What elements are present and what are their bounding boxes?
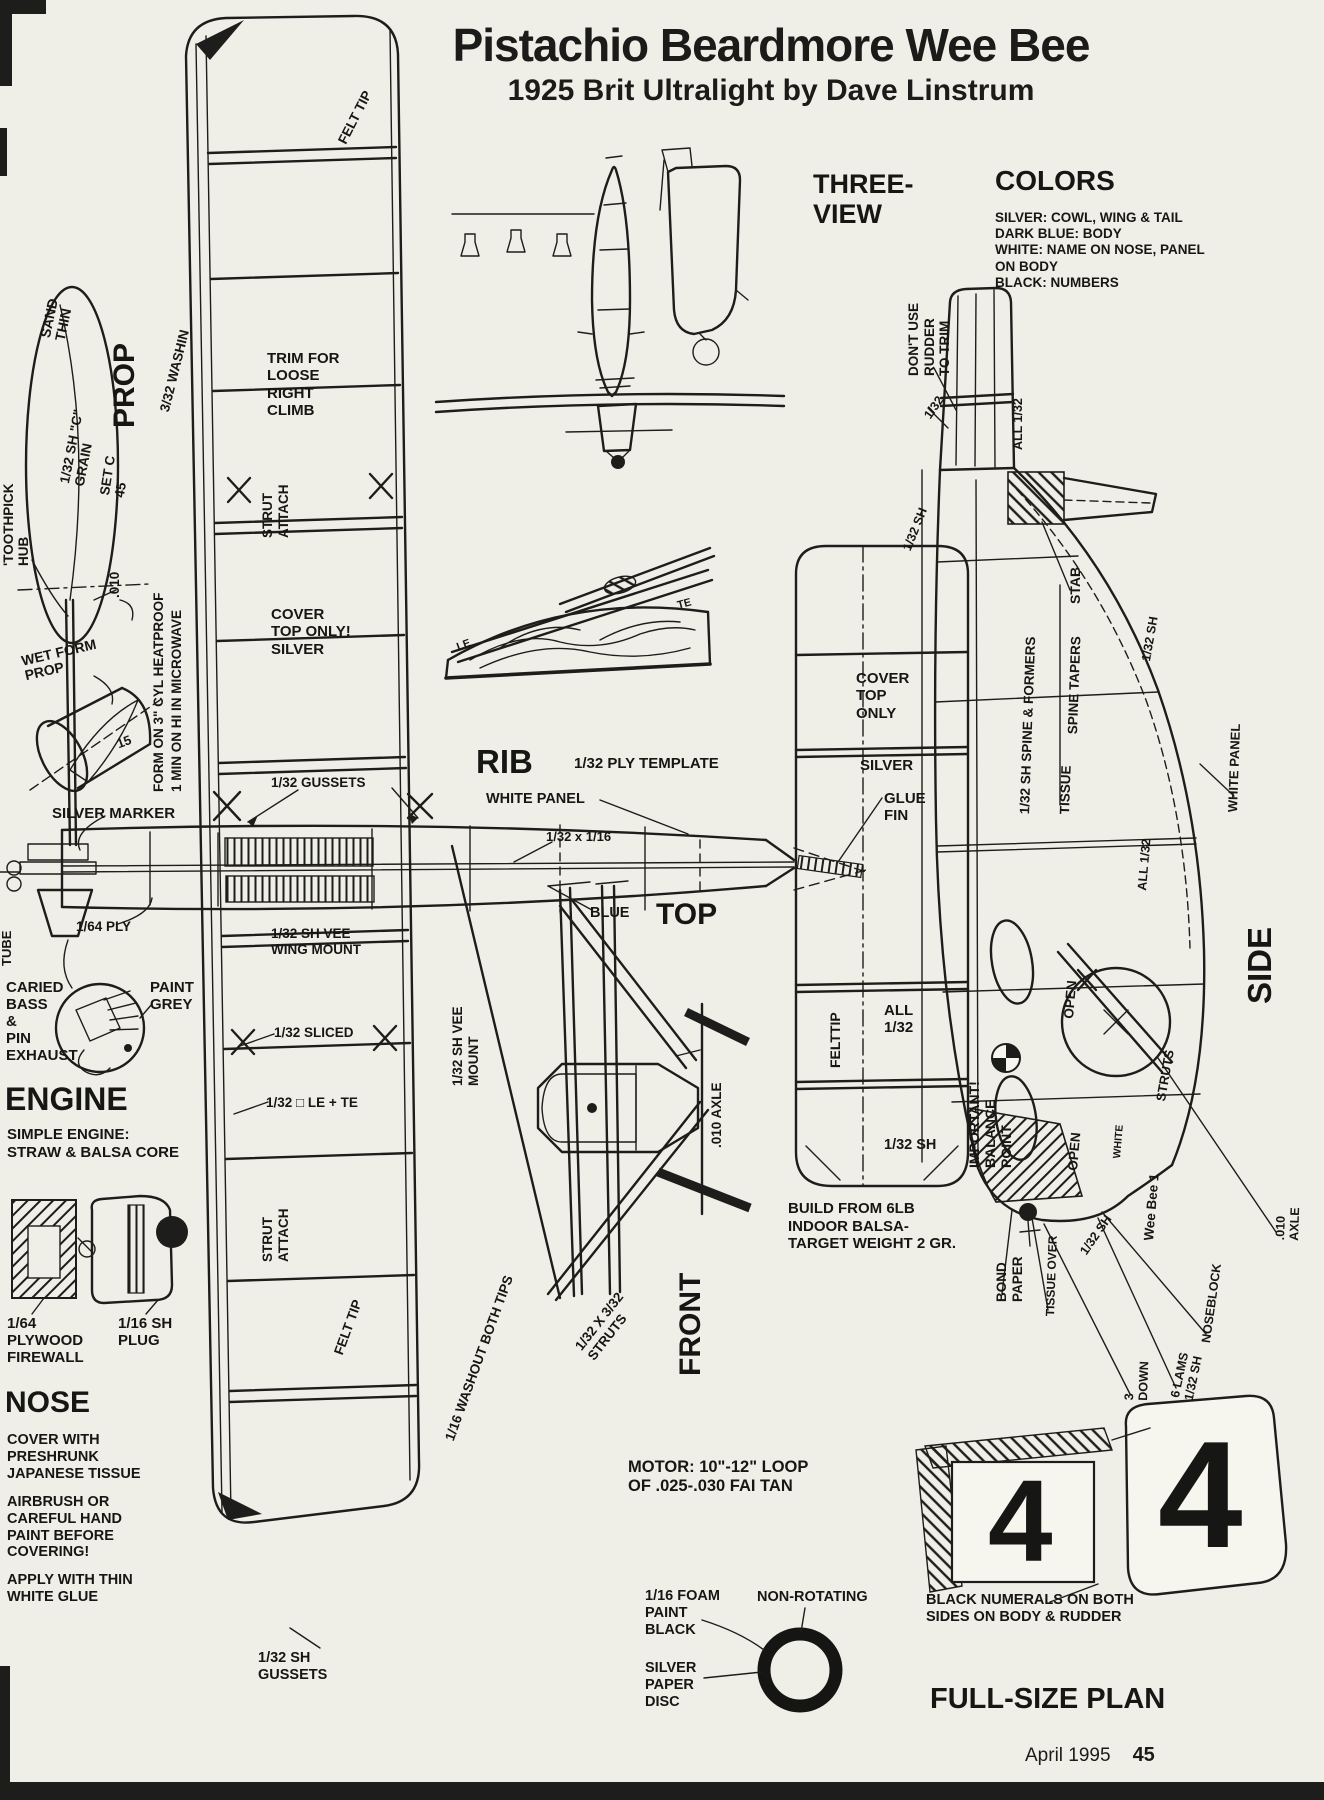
white-panel-top-note: WHITE PANEL [486, 792, 585, 808]
prop-title: PROP [108, 343, 141, 428]
nose-parts-drawing [12, 1196, 188, 1314]
cover-top-silver-note: COVER TOP ONLY! SILVER [271, 606, 351, 658]
three-view-title: THREE- VIEW [813, 170, 914, 229]
wing-plan-drawing [186, 16, 419, 1523]
plan-page: Pistachio Beardmore Wee Bee 1925 Brit Ul… [0, 0, 1324, 1800]
sliced-note: 1/32 SLICED [274, 1026, 354, 1041]
airbrush-note: AIRBRUSH OR CAREFUL HAND PAINT BEFORE CO… [7, 1494, 122, 1561]
fin-stab-plan-drawing [794, 546, 968, 1186]
down-3-note: 3 DOWN [1122, 1360, 1152, 1401]
balance-note: IMPORTANT! BALANCE POINT [966, 1081, 1014, 1168]
glue-fin-note: GLUE FIN [884, 790, 926, 825]
tissue-over-note: TISSUE OVER [1044, 1235, 1060, 1316]
colors-legend: SILVER: COWL, WING & TAIL DARK BLUE: BOD… [995, 210, 1205, 291]
body-numeral-4: 4 [1158, 1412, 1243, 1579]
plug-note: 1/16 SH PLUG [118, 1316, 172, 1350]
vee-mount-note: 1/32 SH VEE MOUNT [450, 1006, 481, 1086]
prop-wire-note: .010 [108, 572, 123, 598]
page-footer: April 199545 [1025, 1744, 1155, 1767]
all-132-fin-note: ALL 1/32 [884, 1002, 913, 1037]
firewall-note: 1/64 PLYWOOD FIREWALL [7, 1316, 84, 1367]
strip-note: 1/32 x 1/16 [546, 830, 611, 844]
vee-wing-mount-note: 1/32 SH VEE WING MOUNT [271, 926, 361, 957]
sh-132-fin-note: 1/32 SH [884, 1138, 936, 1154]
foam-note: 1/16 FOAM PAINT BLACK [645, 1588, 720, 1638]
gussets-132-note: 1/32 GUSSETS [271, 776, 366, 791]
side-title: SIDE [1242, 927, 1278, 1004]
ply-164-note: 1/64 PLY [76, 920, 131, 935]
rudder-numeral-4: 4 [988, 1458, 1053, 1586]
stab-note: STAB [1068, 567, 1083, 604]
full-size-plan-title: FULL-SIZE PLAN [930, 1684, 1165, 1716]
build-note: BUILD FROM 6LB INDOOR BALSA- TARGET WEIG… [788, 1200, 956, 1253]
axle-010-side-note: .010 AXLE [1274, 1190, 1303, 1241]
colors-title: COLORS [995, 166, 1115, 197]
rudder-trim-note: DON'T USE RUDDER TO TRIM [906, 303, 953, 376]
leader-lines [32, 368, 1276, 1648]
white-glue-note: APPLY WITH THIN WHITE GLUE [7, 1572, 133, 1606]
silver-marker-note: SILVER MARKER [52, 806, 175, 823]
page-subtitle: 1925 Brit Ultralight by Dave Linstrum [398, 74, 1144, 108]
engine-title: ENGINE [5, 1082, 128, 1117]
footer-page-number: 45 [1133, 1744, 1155, 1766]
non-rotating-note: NON-ROTATING [757, 1590, 868, 1606]
engine-sub: SIMPLE ENGINE: STRAW & BALSA CORE [7, 1126, 179, 1161]
ply-template-note: 1/32 PLY TEMPLATE [574, 756, 719, 773]
nose-cover-note: COVER WITH PRESHRUNK JAPANESE TISSUE [7, 1432, 141, 1482]
microwave-note: FORM ON 3" CYL HEATPROOF 1 MIN ON HI IN … [150, 593, 185, 792]
front-title: FRONT [674, 1273, 707, 1376]
rib-template-drawing [446, 548, 714, 678]
gussets-sh-note: 1/32 SH GUSSETS [258, 1650, 327, 1684]
paint-grey-note: PAINT GREY [150, 980, 194, 1014]
strut-attach-lower-note: STRUT ATTACH [260, 1209, 291, 1263]
page-title: Pistachio Beardmore Wee Bee [398, 18, 1144, 72]
axle-010-front-note: .010 AXLE [710, 1082, 725, 1148]
motor-note: MOTOR: 10"-12" LOOP OF .025-.030 FAI TAN [628, 1458, 808, 1497]
nose-title: NOSE [5, 1386, 90, 1419]
cylinder-drawing [27, 688, 160, 799]
silver-fin-note: SILVER [860, 758, 913, 775]
tube-note: TUBE [0, 931, 14, 966]
strut-attach-upper-note: STRUT ATTACH [260, 485, 291, 539]
felttip-fin-note: FELTTIP [828, 1012, 843, 1068]
numerals-caption: BLACK NUMERALS ON BOTH SIDES ON BODY & R… [926, 1592, 1134, 1626]
bond-paper-note: BOND PAPER [994, 1256, 1025, 1302]
tissue-note: TISSUE [1058, 765, 1075, 814]
three-view-drawing [436, 148, 784, 469]
rib-title: RIB [476, 744, 533, 780]
toothpick-hub-note: 'TOOTHPICK HUB [2, 484, 32, 566]
cover-top-only-note: COVER TOP ONLY [856, 670, 909, 722]
blue-note: BLUE [590, 906, 629, 922]
top-title: TOP [656, 898, 717, 931]
fin-all-132-note: ALL 1/32 [1012, 398, 1026, 450]
exhaust-note: CARIED BASS & PIN EXHAUST [6, 980, 78, 1065]
le-te-note: 1/32 □ LE + TE [266, 1096, 358, 1111]
wheel-drawing [702, 1608, 836, 1706]
set-c-note: SET C 45 [98, 455, 134, 499]
trim-note: TRIM FOR LOOSE RIGHT CLIMB [267, 350, 340, 420]
silver-disc-note: SILVER PAPER DISC [645, 1660, 696, 1710]
footer-issue: April 1995 [1025, 1745, 1111, 1766]
